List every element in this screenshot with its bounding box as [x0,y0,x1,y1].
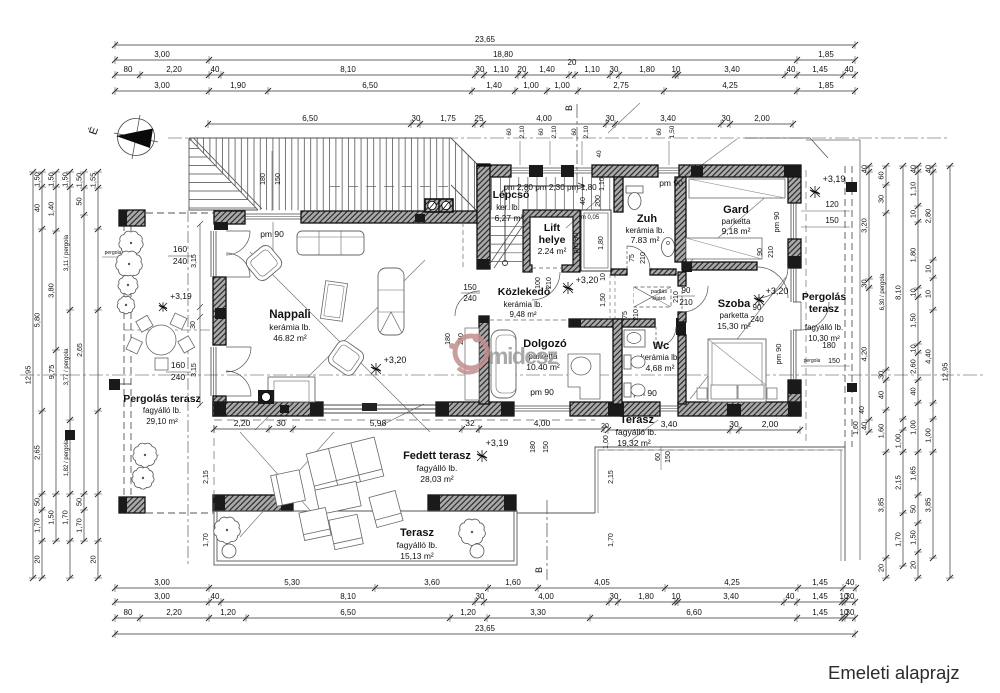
svg-text:2,75: 2,75 [613,81,629,90]
svg-text:4,00: 4,00 [536,114,552,123]
svg-text:2,65: 2,65 [77,343,84,357]
svg-text:40: 40 [786,592,795,601]
svg-text:150: 150 [543,441,550,453]
svg-text:1,45: 1,45 [812,578,828,587]
svg-text:40: 40 [596,150,603,158]
svg-text:pm 90: pm 90 [774,344,783,365]
svg-text:+3,20: +3,20 [576,275,599,285]
svg-text:7.83 m²: 7.83 m² [631,235,660,245]
svg-text:parketta: parketta [722,217,751,226]
svg-text:180: 180 [822,341,836,350]
svg-text:60: 60 [506,128,513,136]
svg-text:2,60: 2,60 [909,359,918,374]
svg-text:1,85: 1,85 [818,50,834,59]
svg-text:+3,20: +3,20 [384,355,407,365]
svg-text:1,80: 1,80 [598,236,605,250]
svg-text:1,00: 1,00 [603,435,610,449]
svg-text:20: 20 [89,555,98,563]
svg-text:20: 20 [568,58,577,67]
svg-text:1,70: 1,70 [33,518,42,533]
svg-text:pm 2,80 pm 2,30 pm 1,80: pm 2,80 pm 2,30 pm 1,80 [503,183,597,192]
svg-text:10: 10 [909,288,918,296]
svg-text:+3,19: +3,19 [486,438,509,448]
svg-text:240: 240 [171,372,185,382]
svg-text:kijáró: kijáró [652,296,665,302]
svg-text:10: 10 [672,592,681,601]
svg-text:helye: helye [539,234,566,246]
svg-text:2,10: 2,10 [519,125,526,138]
svg-text:3,30: 3,30 [530,608,546,617]
svg-text:1,55: 1,55 [89,173,98,188]
svg-text:29,10 m²: 29,10 m² [146,417,178,426]
svg-text:150: 150 [828,358,840,365]
svg-text:23,65: 23,65 [475,35,496,44]
svg-text:60: 60 [877,171,886,179]
svg-text:30: 30 [722,114,731,123]
svg-text:1,80: 1,80 [639,65,655,74]
svg-text:40: 40 [860,165,869,173]
svg-text:1,10: 1,10 [909,182,918,197]
svg-text:20: 20 [518,65,527,74]
svg-text:40: 40 [211,592,220,601]
svg-text:3,85: 3,85 [877,498,886,513]
svg-text:fagyálló lb.: fagyálló lb. [805,323,843,332]
svg-text:60: 60 [538,128,545,136]
svg-text:30: 30 [846,592,855,601]
svg-text:60: 60 [656,128,663,136]
svg-text:40: 40 [33,204,42,212]
svg-text:Pergolás terasz: Pergolás terasz [123,393,201,405]
svg-text:1,85: 1,85 [818,81,834,90]
svg-text:4,25: 4,25 [724,578,740,587]
svg-text:4,05: 4,05 [594,578,610,587]
svg-text:2,20: 2,20 [166,65,182,74]
svg-text:2.24 m²: 2.24 m² [538,246,567,256]
svg-text:terasz: terasz [809,303,839,315]
svg-text:80: 80 [124,608,133,617]
svg-text:Közlekedő: Közlekedő [498,286,551,298]
svg-text:50: 50 [33,498,42,506]
svg-text:15,30 m²: 15,30 m² [717,321,751,331]
svg-text:fagyálló lb.: fagyálló lb. [397,540,438,550]
svg-text:15,13 m²: 15,13 m² [400,551,434,561]
svg-text:Pergolás: Pergolás [802,291,847,303]
svg-text:20: 20 [909,561,918,569]
svg-text:5,30: 5,30 [284,578,300,587]
svg-text:3,85: 3,85 [924,498,933,513]
svg-text:2,15: 2,15 [894,475,903,490]
svg-text:1,80: 1,80 [638,592,654,601]
svg-text:1,00: 1,00 [924,428,933,443]
svg-text:Lift: Lift [544,222,561,234]
svg-text:fagyálló lb.: fagyálló lb. [616,427,657,437]
svg-text:2,20: 2,20 [166,608,182,617]
svg-text:3,00: 3,00 [154,81,170,90]
svg-text:Wc: Wc [653,340,670,352]
svg-text:12,95: 12,95 [941,363,950,382]
svg-text:210: 210 [768,246,775,258]
svg-text:1,70: 1,70 [61,510,70,525]
svg-text:25: 25 [475,114,484,123]
svg-text:1,70: 1,70 [75,518,84,533]
svg-text:30: 30 [606,114,615,123]
svg-text:1,60: 1,60 [853,421,860,435]
svg-text:75: 75 [629,254,636,262]
svg-text:1,40: 1,40 [47,202,56,217]
svg-text:1,50: 1,50 [75,173,84,188]
svg-text:1,65: 1,65 [909,466,918,481]
svg-text:3,15: 3,15 [191,363,198,377]
svg-text:9,18 m²: 9,18 m² [722,226,751,236]
svg-text:30: 30 [276,418,286,428]
svg-text:60: 60 [571,128,578,136]
svg-text:1,60: 1,60 [877,424,886,439]
svg-text:30: 30 [412,114,421,123]
svg-text:150: 150 [275,173,282,185]
svg-text:3,40: 3,40 [660,114,676,123]
svg-text:20: 20 [877,564,886,572]
svg-text:40: 40 [787,65,796,74]
svg-text:1,70: 1,70 [203,533,210,547]
svg-text:4,20: 4,20 [860,347,869,362]
svg-text:Nappali: Nappali [269,309,311,321]
svg-text:150: 150 [463,283,477,292]
svg-text:30: 30 [476,592,485,601]
svg-text:2,10: 2,10 [583,125,590,138]
svg-text:40: 40 [580,197,587,205]
svg-text:4,25: 4,25 [722,81,738,90]
svg-text:1,70: 1,70 [608,533,615,547]
svg-text:+3,19: +3,19 [170,291,192,301]
svg-text:4,68 m²: 4,68 m² [646,363,675,373]
svg-text:40: 40 [909,387,918,395]
svg-text:1,10: 1,10 [493,65,509,74]
svg-text:90: 90 [757,248,764,256]
svg-text:1,40: 1,40 [486,81,502,90]
svg-text:1,70: 1,70 [894,532,903,547]
svg-text:40: 40 [859,406,866,414]
svg-text:3,40: 3,40 [723,592,739,601]
svg-text:2,65: 2,65 [33,445,42,460]
svg-text:40: 40 [845,65,854,74]
svg-text:240: 240 [750,315,764,324]
svg-text:parketta: parketta [720,311,749,320]
svg-text:40: 40 [909,165,918,173]
svg-text:160: 160 [171,360,185,370]
svg-text:50: 50 [75,197,84,205]
svg-text:46.82 m²: 46.82 m² [273,333,307,343]
svg-text:pm 90: pm 90 [659,178,683,188]
svg-text:80: 80 [124,65,133,74]
svg-text:9,75: 9,75 [47,365,56,380]
svg-text:1,00: 1,00 [523,81,539,90]
svg-text:pm 90: pm 90 [772,212,781,233]
svg-text:1,45: 1,45 [812,65,828,74]
svg-text:240: 240 [463,294,477,303]
svg-text:180: 180 [530,441,537,453]
svg-text:4,00: 4,00 [538,592,554,601]
svg-text:18,80: 18,80 [493,50,514,59]
svg-text:Fedett terasz: Fedett terasz [403,450,471,462]
svg-text:100: 100 [535,277,542,289]
svg-text:midesz: midesz [488,343,558,369]
svg-text:200: 200 [595,195,602,207]
svg-text:150: 150 [665,451,672,463]
svg-text:8,10: 8,10 [340,592,356,601]
svg-text:6,50: 6,50 [362,81,378,90]
svg-text:4,40: 4,40 [924,349,933,364]
svg-text:180: 180 [260,173,267,185]
svg-text:210: 210 [640,252,647,264]
svg-text:pergola: pergola [804,358,821,364]
svg-text:30: 30 [610,592,619,601]
svg-text:10: 10 [672,65,681,74]
svg-text:30: 30 [190,321,197,329]
svg-text:20: 20 [33,555,42,563]
svg-text:1,50: 1,50 [33,172,42,187]
svg-text:1,50: 1,50 [47,172,56,187]
svg-text:30: 30 [846,608,855,617]
svg-text:50: 50 [75,498,84,506]
svg-text:30: 30 [729,419,739,429]
svg-text:1,00: 1,00 [909,420,918,435]
svg-text:10: 10 [909,344,918,352]
svg-text:1,20: 1,20 [220,608,236,617]
svg-text:40: 40 [877,391,886,399]
svg-text:90: 90 [682,286,691,295]
svg-text:2,00: 2,00 [754,114,770,123]
svg-text:pm 90: pm 90 [530,387,554,397]
svg-text:28,03 m²: 28,03 m² [420,474,454,484]
svg-text:1,20: 1,20 [460,608,476,617]
svg-text:6,27 m²: 6,27 m² [495,213,524,223]
svg-text:30: 30 [860,279,869,287]
svg-text:2,00: 2,00 [762,419,779,429]
svg-text:1,45: 1,45 [812,592,828,601]
svg-text:32: 32 [465,418,475,428]
svg-text:75: 75 [622,311,629,319]
svg-text:2,15: 2,15 [203,470,210,484]
svg-text:2,10: 2,10 [551,125,558,138]
svg-text:2,80: 2,80 [924,209,933,224]
svg-text:kerámia lb.: kerámia lb. [625,226,664,235]
svg-text:+3,20: +3,20 [766,286,789,296]
svg-text:10: 10 [909,210,918,218]
svg-text:6,50: 6,50 [302,114,318,123]
svg-text:3,60: 3,60 [424,578,440,587]
svg-text:6,50: 6,50 [340,608,356,617]
svg-text:5,98: 5,98 [370,418,387,428]
svg-text:ker. lb.: ker. lb. [496,203,520,212]
svg-text:3,00: 3,00 [154,592,170,601]
svg-text:210: 210 [633,309,640,321]
svg-text:3,40: 3,40 [724,65,740,74]
svg-text:3,00: 3,00 [154,50,170,59]
svg-text:1,50: 1,50 [909,530,918,545]
svg-text:Zuh: Zuh [637,213,657,225]
svg-text:1,10: 1,10 [599,177,606,191]
svg-text:1,90: 1,90 [230,81,246,90]
svg-text:10: 10 [924,290,933,298]
svg-text:240: 240 [173,256,187,266]
svg-text:9,48 m²: 9,48 m² [509,310,536,319]
svg-text:30: 30 [476,65,485,74]
svg-text:kerámia lb.: kerámia lb. [640,353,679,362]
svg-text:40: 40 [211,65,220,74]
svg-text:40: 40 [924,165,933,173]
svg-text:1,50: 1,50 [47,510,56,525]
svg-text:3,00: 3,00 [154,578,170,587]
svg-text:Terasz: Terasz [400,527,435,539]
svg-text:210: 210 [679,298,693,307]
svg-text:3,40: 3,40 [661,419,678,429]
svg-text:1,50: 1,50 [909,313,918,328]
svg-text:2,15: 2,15 [608,470,615,484]
svg-text:m 0,05: m 0,05 [581,215,600,221]
svg-text:160: 160 [173,244,187,254]
svg-text:pm 90: pm 90 [260,229,284,239]
svg-text:90: 90 [753,303,762,312]
svg-text:1,50: 1,50 [61,172,70,187]
svg-text:1,45: 1,45 [812,608,828,617]
svg-text:kerámia lb.: kerámia lb. [269,322,311,332]
svg-text:30: 30 [877,195,886,203]
svg-text:1,82 / pergola: 1,82 / pergola [64,439,70,476]
svg-text:1,00: 1,00 [894,434,903,449]
svg-text:3,80: 3,80 [47,283,56,298]
svg-text:40: 40 [846,578,855,587]
svg-text:150: 150 [825,216,839,225]
svg-text:2,20: 2,20 [234,418,251,428]
svg-text:1,80: 1,80 [909,248,918,263]
svg-text:8,10: 8,10 [340,65,356,74]
svg-text:10: 10 [924,265,933,273]
svg-text:Emeleti alaprajz: Emeleti alaprajz [828,662,960,683]
svg-text:1,40: 1,40 [539,65,555,74]
svg-text:120: 120 [825,200,839,209]
svg-text:210: 210 [546,277,553,289]
svg-text:6,60: 6,60 [686,608,702,617]
svg-text:4,00: 4,00 [534,418,551,428]
svg-text:pm 90: pm 90 [571,233,580,254]
svg-text:5,80: 5,80 [33,313,42,328]
svg-text:23,65: 23,65 [475,624,496,633]
svg-text:40: 40 [860,422,869,430]
svg-text:19,32 m²: 19,32 m² [617,438,651,448]
svg-text:180: 180 [445,333,452,345]
svg-text:3,20: 3,20 [860,218,869,233]
svg-text:50: 50 [909,505,918,513]
svg-text:+3,19: +3,19 [823,174,846,184]
svg-text:1,10: 1,10 [584,65,600,74]
svg-text:Szoba: Szoba [718,298,751,310]
svg-text:B: B [534,567,544,573]
svg-text:1,50: 1,50 [600,293,607,307]
svg-text:1,60: 1,60 [505,578,521,587]
svg-text:10: 10 [600,273,607,281]
svg-text:1,75: 1,75 [440,114,456,123]
svg-text:kerámia lb.: kerámia lb. [503,300,542,309]
svg-text:B: B [564,105,574,111]
svg-text:fagyálló lb.: fagyálló lb. [417,463,458,473]
svg-text:1,00: 1,00 [554,81,570,90]
svg-text:3,11 / pergola: 3,11 / pergola [64,234,70,271]
svg-text:padlás: padlás [651,289,667,295]
svg-text:6,30 / pergola: 6,30 / pergola [880,273,886,310]
svg-text:Gard: Gard [723,204,749,216]
svg-text:30: 30 [610,65,619,74]
svg-text:1,50: 1,50 [669,125,676,138]
svg-text:Terasz: Terasz [620,414,655,426]
svg-text:8,10: 8,10 [894,285,903,300]
svg-text:fagyálló lb.: fagyálló lb. [143,406,181,415]
svg-text:3,77 / pergola: 3,77 / pergola [64,348,70,385]
